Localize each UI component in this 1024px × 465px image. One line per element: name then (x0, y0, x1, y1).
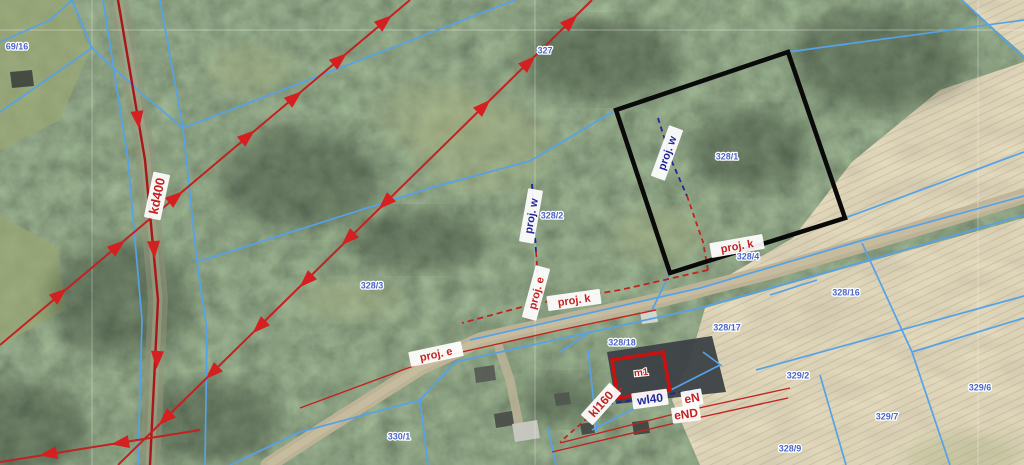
building-roof (474, 365, 496, 383)
light-canopy-patch (615, 210, 705, 260)
parcel-number-label: 328/9 (779, 443, 802, 453)
parcel-number-label: 330/1 (388, 431, 411, 441)
dark-canopy-patch (790, 10, 970, 110)
parcel-number-label: 328/2 (541, 210, 564, 220)
building-roof (554, 392, 571, 406)
dark-canopy-patch (50, 240, 190, 360)
parcel-number-label: 328/17 (713, 322, 741, 332)
gis-map-view: 69/16327328/1328/2328/3328/4328/16328/17… (0, 0, 1024, 465)
building-roof (494, 411, 514, 428)
parcel-number-label: 328/16 (832, 287, 860, 297)
parcel-number-label: 69/16 (6, 41, 29, 51)
light-canopy-patch (210, 45, 290, 95)
parcel-number-label: 328/3 (361, 280, 384, 290)
map-canvas[interactable]: 69/16327328/1328/2328/3328/4328/16328/17… (0, 0, 1024, 465)
utility-label-text: m1 (633, 367, 649, 379)
building-roof (10, 70, 34, 88)
parcel-number-label: 328/1 (716, 151, 739, 161)
parcel-number-label: 328/18 (608, 337, 636, 347)
parcel-number-label: 329/6 (969, 382, 992, 392)
dark-canopy-patch (520, 20, 680, 100)
parcel-number-label: 329/7 (876, 411, 899, 421)
parcel-number-label: 329/2 (787, 370, 810, 380)
parcel-number-label: 327 (537, 45, 552, 55)
dark-canopy-patch (690, 110, 810, 190)
light-canopy-patch (300, 280, 400, 320)
dark-canopy-patch (350, 210, 490, 270)
utility-label-m1: m1 (633, 367, 649, 379)
utility-label-text: eN (683, 390, 701, 406)
